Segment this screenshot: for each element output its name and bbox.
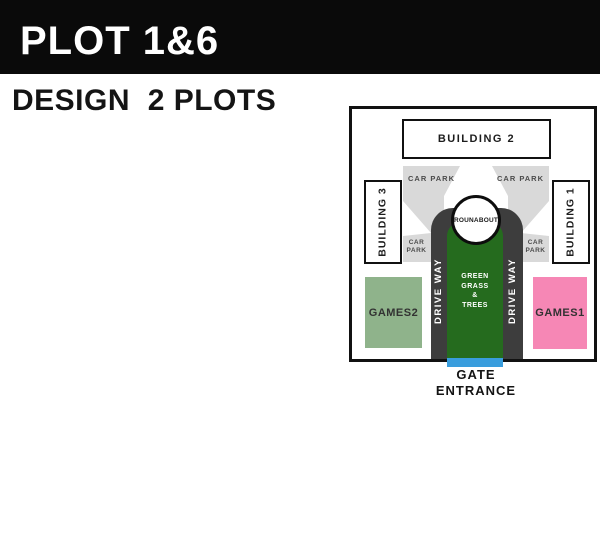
title-banner: PLOT 1&6 xyxy=(0,0,600,74)
car-park-label-mid-left: CAR PARK xyxy=(403,239,430,254)
site-plan-map: ROUNABOUT BUILDING 2 BUILDING 3 BUILDING… xyxy=(349,106,597,362)
roundabout-label: ROUNABOUT xyxy=(454,217,498,224)
gate-entrance-caption: GATE ENTRANCE xyxy=(395,367,557,398)
building-3-label: BUILDING 3 xyxy=(377,180,390,264)
building-1-label: BUILDING 1 xyxy=(565,180,578,264)
games1-area: GAMES1 xyxy=(533,277,587,349)
driveway-label-right: DRIVE WAY xyxy=(507,246,519,336)
car-park-label-top-left: CAR PARK xyxy=(403,174,460,183)
roundabout-circle: ROUNABOUT xyxy=(451,195,501,245)
building-1-box: BUILDING 1 xyxy=(552,180,590,264)
games2-area: GAMES2 xyxy=(365,277,422,348)
building-2-label: BUILDING 2 xyxy=(438,133,515,145)
driveway-label-left: DRIVE WAY xyxy=(433,246,445,336)
games2-label: GAMES2 xyxy=(369,307,418,319)
games1-label: GAMES1 xyxy=(535,307,584,319)
green-grass-label: GREEN GRASS & TREES xyxy=(447,272,503,310)
design-subtitle: DESIGN 2 PLOTS xyxy=(12,84,276,117)
car-park-label-top-right: CAR PARK xyxy=(492,174,549,183)
car-park-label-mid-right: CAR PARK xyxy=(522,239,549,254)
gate-entrance-strip xyxy=(447,358,503,367)
page-title: PLOT 1&6 xyxy=(20,13,219,61)
building-2-box: BUILDING 2 xyxy=(402,119,551,159)
building-3-box: BUILDING 3 xyxy=(364,180,402,264)
